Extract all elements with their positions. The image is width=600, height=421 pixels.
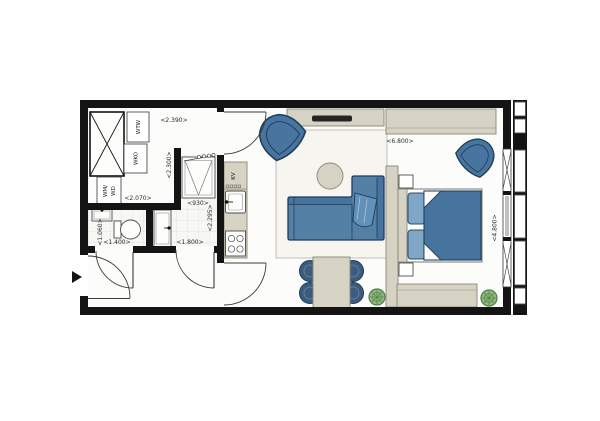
- facade-strip: [513, 100, 527, 315]
- wall-storage-bottom: [86, 203, 181, 210]
- wall-right-upper: [503, 108, 511, 149]
- dim-bathroom-width: <1.800>: [176, 239, 203, 246]
- coffee-table: [317, 163, 343, 189]
- dim-toilet-width: <1.400>: [103, 239, 130, 246]
- wall-core-stub: [217, 108, 224, 112]
- dim-storage-depth: <2.300>: [166, 151, 173, 178]
- bedroom-sideboard: [397, 284, 477, 307]
- window-mullion-2: [503, 237, 511, 241]
- vanity-basin: [154, 210, 171, 247]
- washer-dryer-unit: [97, 177, 121, 206]
- entrance-arrow-icon: [72, 271, 82, 283]
- shaft: [90, 112, 124, 176]
- dim-bedroom-depth: <4.800>: [492, 214, 499, 241]
- dim-toilet-depth: <1.060>: [97, 218, 104, 245]
- bed-headboard: [398, 189, 407, 262]
- nightstand-bottom: [399, 263, 413, 276]
- bed-duvet: [424, 191, 481, 260]
- dining-set: [300, 257, 364, 308]
- wall-hall-2: [133, 246, 176, 253]
- cooktop: [226, 231, 246, 256]
- window-band: [503, 149, 511, 287]
- wc-cistern: [114, 221, 121, 238]
- pillow-2: [408, 230, 425, 259]
- wtw-label: WTW: [136, 119, 142, 134]
- wardrobe: [386, 109, 496, 134]
- kitchen: KV: [224, 162, 247, 258]
- dim-bathroom-depth: <2.295>: [207, 204, 214, 231]
- wc: [114, 220, 141, 239]
- wm-label-line1: WM/: [103, 185, 109, 197]
- wc-bowl: [121, 220, 141, 239]
- room-divider: [386, 166, 398, 307]
- window-mullion-1: [503, 191, 511, 195]
- double-bed: [398, 189, 482, 262]
- shower-cabin: [182, 153, 215, 198]
- wd-label-line2: WD: [111, 186, 117, 196]
- wall-hall-1: [86, 246, 95, 253]
- kitchen-sink: [225, 191, 246, 213]
- wall-hall-3: [214, 246, 224, 253]
- floor-plan-canvas: KV WTW: [0, 0, 600, 421]
- wall-left-lower: [80, 296, 88, 315]
- wall-left-upper: [80, 100, 88, 255]
- wall-shower-left: [174, 148, 181, 210]
- wko-label: WKO: [134, 151, 140, 165]
- plant-living: [369, 289, 385, 305]
- dim-living-width: <6.800>: [386, 138, 413, 145]
- facade-panels: [515, 102, 526, 304]
- dim-storage-width: <2.390>: [160, 117, 187, 124]
- wall-right-lower: [503, 287, 511, 307]
- nightstand-top: [399, 175, 413, 188]
- dim-shower-width: <930>: [187, 200, 209, 207]
- plant-bedroom: [481, 290, 497, 306]
- dim-wm-zone-width: <2.070>: [124, 195, 151, 202]
- floor-plan-drawing: KV WTW: [0, 0, 600, 421]
- tv: [312, 116, 352, 122]
- pillow-1: [408, 193, 425, 224]
- kv-label: KV: [231, 172, 237, 180]
- dining-table: [313, 257, 350, 308]
- wall-bottom: [80, 307, 511, 315]
- wall-top: [80, 100, 511, 108]
- wall-toilet-bath: [146, 210, 153, 252]
